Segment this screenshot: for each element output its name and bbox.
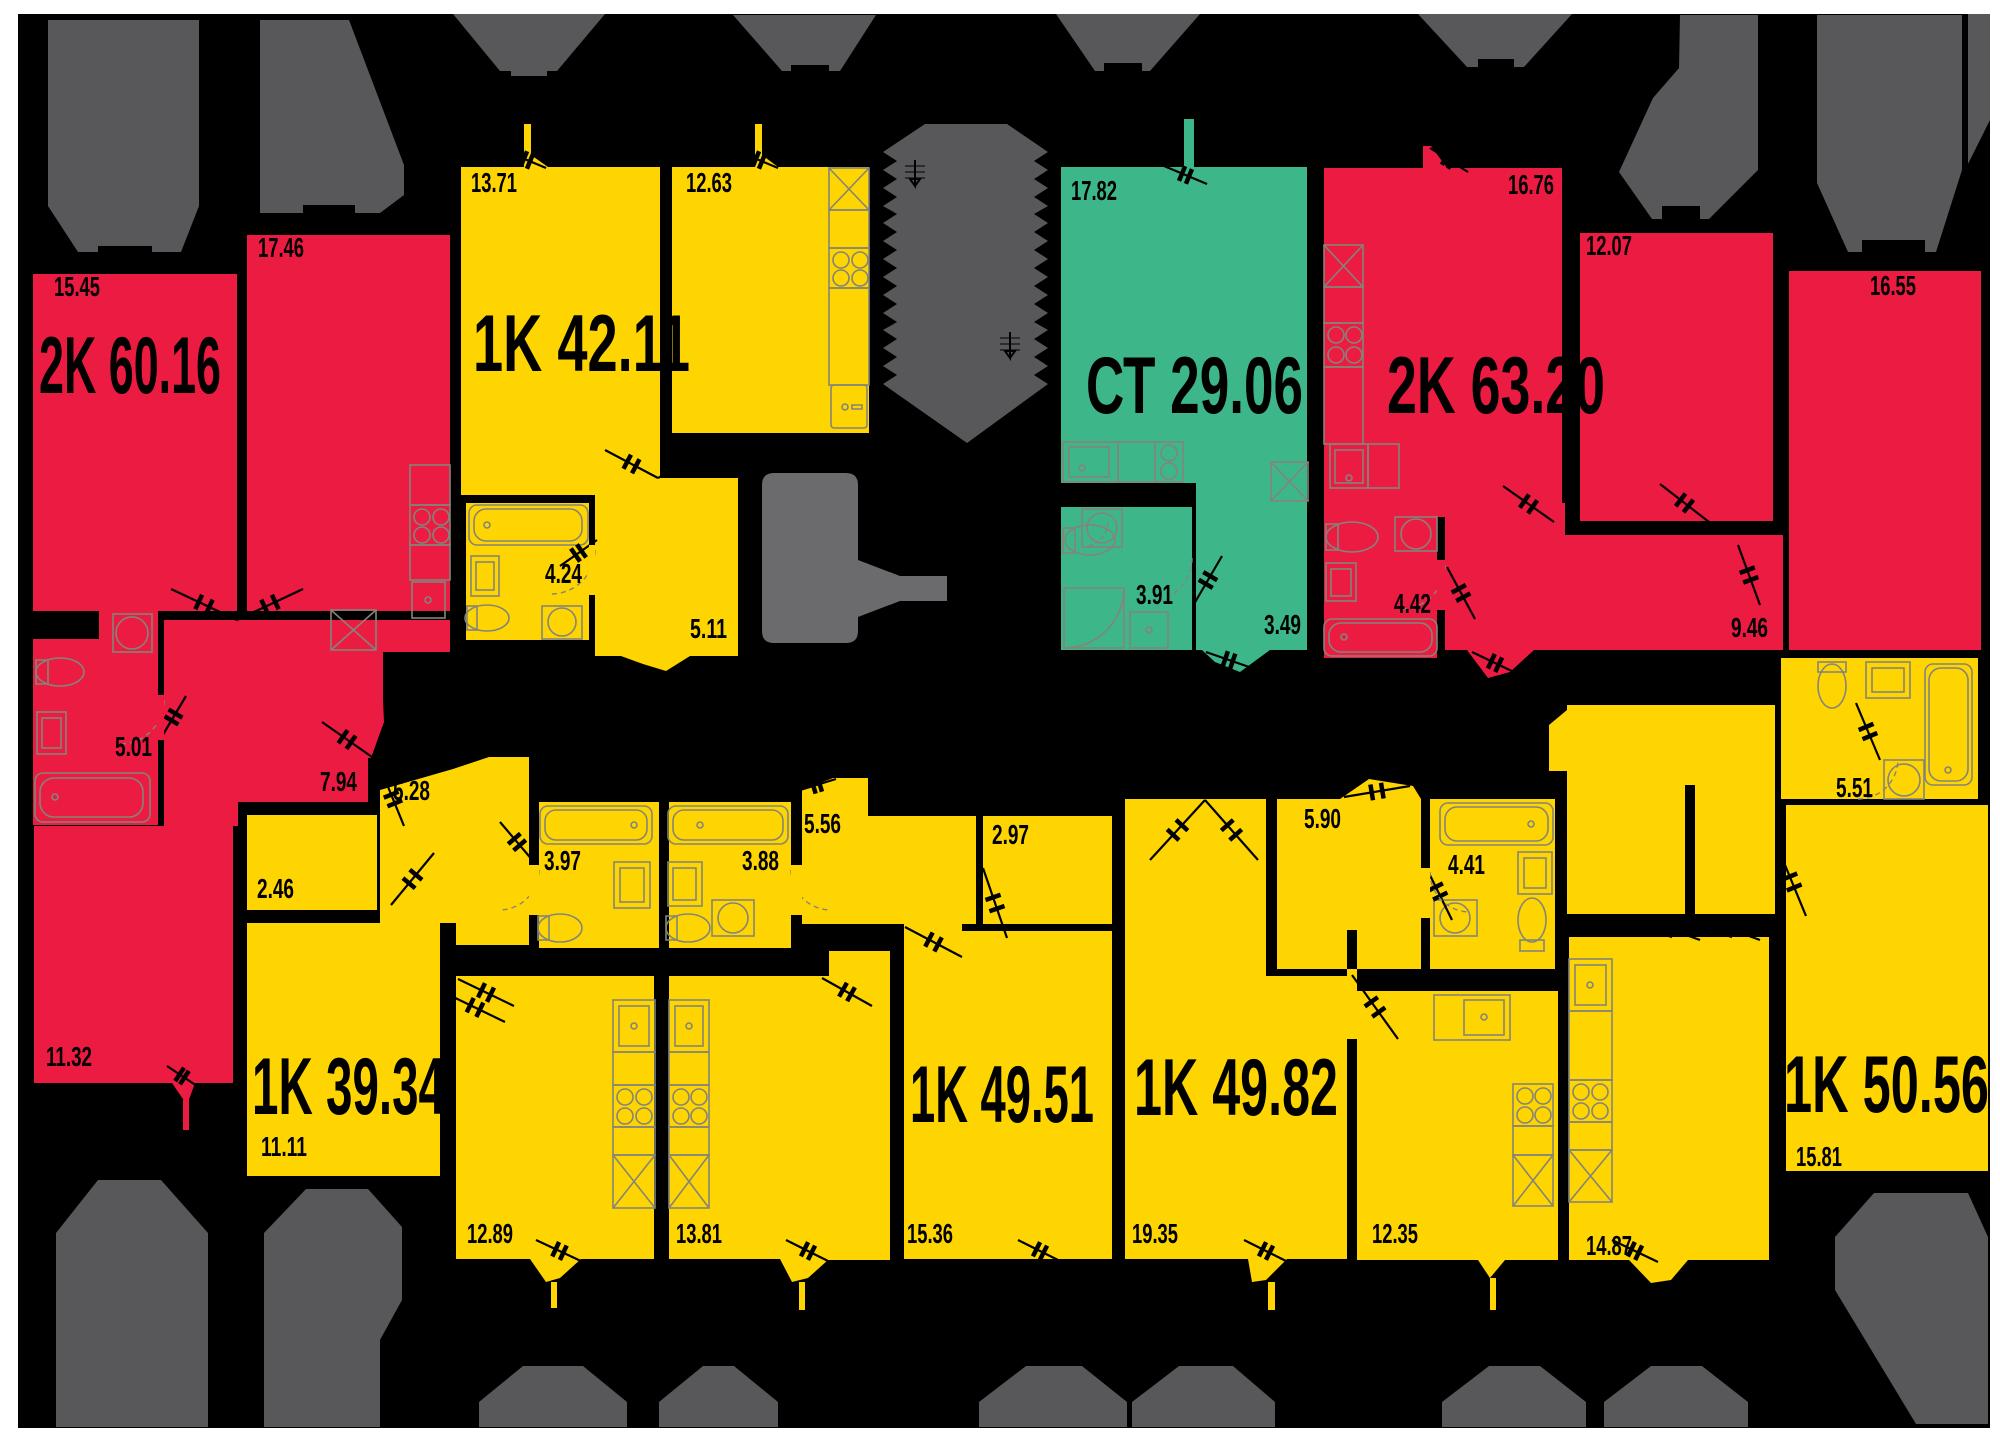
svg-text:2K 63.20: 2K 63.20 [1387,341,1605,431]
svg-text:10.74: 10.74 [1578,675,1624,706]
svg-text:12.07: 12.07 [1586,230,1632,261]
svg-text:СТ 29.06: СТ 29.06 [1086,341,1303,431]
svg-text:2K 60.16: 2K 60.16 [39,321,221,411]
svg-text:5.51: 5.51 [1836,772,1873,803]
svg-text:7.94: 7.94 [320,766,357,797]
svg-text:3.91: 3.91 [1136,579,1173,610]
svg-text:5.11: 5.11 [690,613,727,644]
svg-text:1K 49.82: 1K 49.82 [1134,1043,1338,1133]
svg-text:3.49: 3.49 [1264,609,1301,640]
svg-text:1K 42.11: 1K 42.11 [473,299,690,389]
svg-text:5.90: 5.90 [1304,803,1341,834]
svg-text:17.46: 17.46 [258,232,304,263]
svg-text:16.55: 16.55 [1870,270,1916,301]
svg-text:14.87: 14.87 [1586,1230,1632,1261]
svg-text:11.32: 11.32 [46,1041,92,1072]
svg-text:4.41: 4.41 [1448,849,1485,880]
svg-text:2.46: 2.46 [257,873,294,904]
svg-text:1K 49.51: 1K 49.51 [910,1050,1094,1140]
svg-text:15.36: 15.36 [907,1218,953,1249]
svg-text:12.35: 12.35 [1372,1218,1418,1249]
svg-text:11.11: 11.11 [261,1131,307,1162]
svg-text:1K 50.56: 1K 50.56 [1784,1040,1989,1130]
svg-text:2.97: 2.97 [992,819,1029,850]
svg-text:15.81: 15.81 [1796,1141,1842,1172]
svg-text:3.88: 3.88 [742,845,779,876]
svg-text:1K 39.34: 1K 39.34 [252,1042,445,1132]
svg-text:12.63: 12.63 [686,167,732,198]
svg-text:5.01: 5.01 [115,731,152,762]
svg-text:19.35: 19.35 [1132,1218,1178,1249]
svg-text:5.28: 5.28 [393,775,430,806]
svg-text:15.45: 15.45 [54,271,100,302]
svg-text:12.89: 12.89 [467,1218,513,1249]
svg-text:9.46: 9.46 [1731,612,1768,643]
svg-text:4.24: 4.24 [545,558,582,589]
svg-text:17.82: 17.82 [1071,175,1117,206]
svg-text:5.56: 5.56 [804,808,841,839]
svg-text:16.76: 16.76 [1508,169,1554,200]
svg-text:4.42: 4.42 [1394,588,1431,619]
svg-text:13.81: 13.81 [676,1218,722,1249]
svg-text:13.71: 13.71 [471,167,517,198]
svg-text:3.97: 3.97 [544,845,581,876]
